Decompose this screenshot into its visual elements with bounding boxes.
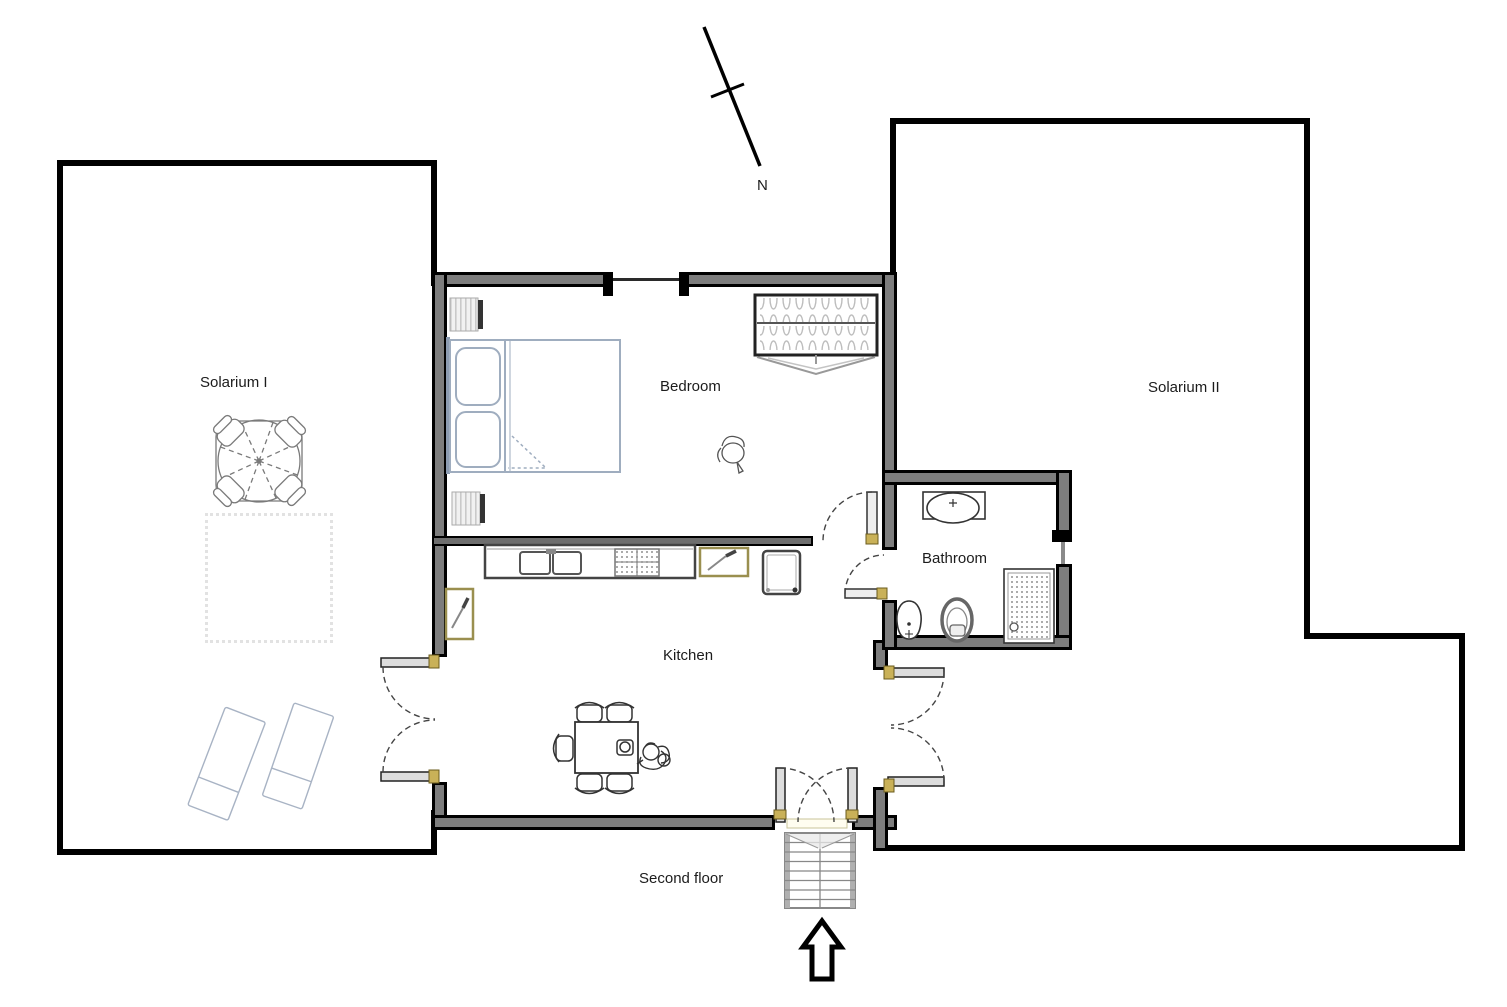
- refrigerator: [763, 551, 800, 594]
- double-bed: [448, 337, 620, 474]
- entry-double-door: [774, 768, 858, 828]
- patio-table-set: [210, 412, 309, 510]
- patio-chair: [272, 413, 309, 450]
- double-door-to-solarium1: [381, 655, 439, 783]
- patio-chair: [210, 473, 247, 510]
- bedroom-door: [823, 492, 878, 544]
- sun-lounger: [262, 703, 334, 809]
- shower: [1004, 569, 1054, 643]
- north-arrow-icon: [704, 27, 760, 166]
- toilet: [942, 599, 972, 641]
- washbasin: [923, 492, 985, 523]
- label-bedroom: Bedroom: [660, 378, 721, 395]
- patio-chair: [210, 412, 247, 449]
- label-solarium-1: Solarium I: [200, 374, 268, 391]
- label-second-floor: Second floor: [639, 870, 723, 887]
- cutting-board: [700, 548, 748, 576]
- kitchen-hob: [615, 549, 659, 576]
- label-bathroom: Bathroom: [922, 550, 987, 567]
- kitchen-counter: [485, 545, 695, 578]
- wardrobe: [755, 295, 877, 374]
- double-door-to-solarium2: [884, 666, 944, 792]
- label-solarium-2: Solarium II: [1148, 379, 1220, 396]
- kitchen-sink: [520, 549, 581, 574]
- bidet: [897, 601, 921, 639]
- dining-table-set: [554, 703, 639, 794]
- plan-linework: [0, 0, 1507, 1007]
- floor-plan: Solarium I Bedroom Solarium II Bathroom …: [0, 0, 1507, 1007]
- up-arrow-icon: [803, 921, 841, 979]
- nightstand: [452, 492, 485, 525]
- seated-person-sketch: [637, 743, 670, 769]
- cutting-board: [446, 589, 473, 639]
- sun-lounger: [188, 707, 266, 820]
- bathroom-door: [845, 555, 887, 599]
- patio-chair: [272, 472, 309, 509]
- label-kitchen: Kitchen: [663, 647, 713, 664]
- plant-icon: [718, 436, 744, 473]
- staircase: [785, 833, 855, 908]
- nightstand: [450, 298, 483, 331]
- label-north: N: [757, 177, 768, 194]
